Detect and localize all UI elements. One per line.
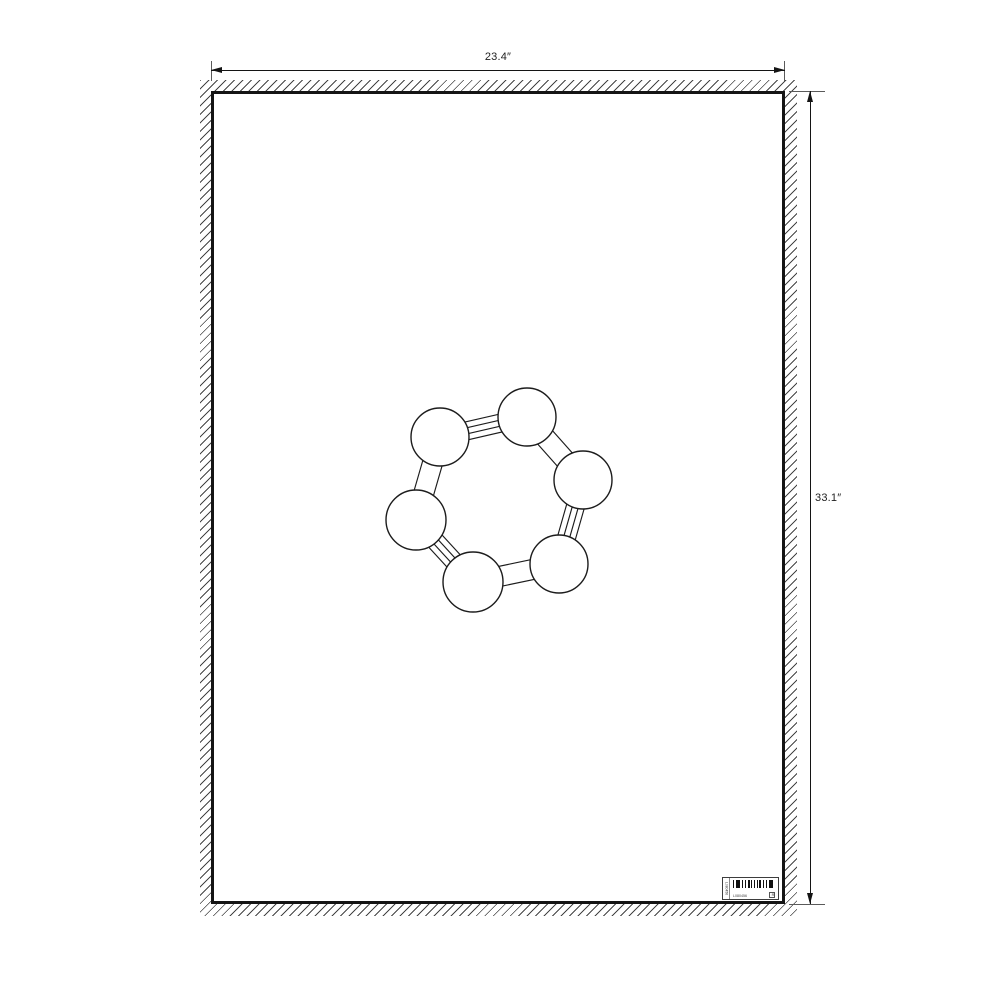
arrow-down-icon bbox=[807, 893, 813, 904]
width-dimension-label: 23.4″ bbox=[398, 51, 598, 63]
certification-mark-box: R bbox=[769, 892, 775, 898]
barcode-code-text: L080456 bbox=[733, 894, 747, 898]
arrow-up-icon bbox=[807, 91, 813, 102]
height-dimension-line bbox=[810, 91, 811, 904]
poster-sheet bbox=[211, 91, 785, 904]
barcode-label: L080456 L080456 R bbox=[722, 877, 779, 900]
height-dimension-label: 33.1″ bbox=[815, 492, 841, 504]
arrow-right-icon bbox=[774, 67, 785, 73]
width-dimension-line bbox=[211, 70, 785, 71]
arrow-left-icon bbox=[211, 67, 222, 73]
poster-mockup-canvas: 23.4″ 33.1″ L080456 L080456 R bbox=[0, 0, 1000, 1000]
barcode-stripes bbox=[733, 880, 775, 888]
barcode-label-side-strip: L080456 bbox=[723, 878, 730, 899]
barcode-side-text: L080456 bbox=[724, 882, 728, 895]
barcode-label-main: L080456 R bbox=[730, 878, 778, 899]
height-extension-line-bottom bbox=[789, 904, 825, 905]
